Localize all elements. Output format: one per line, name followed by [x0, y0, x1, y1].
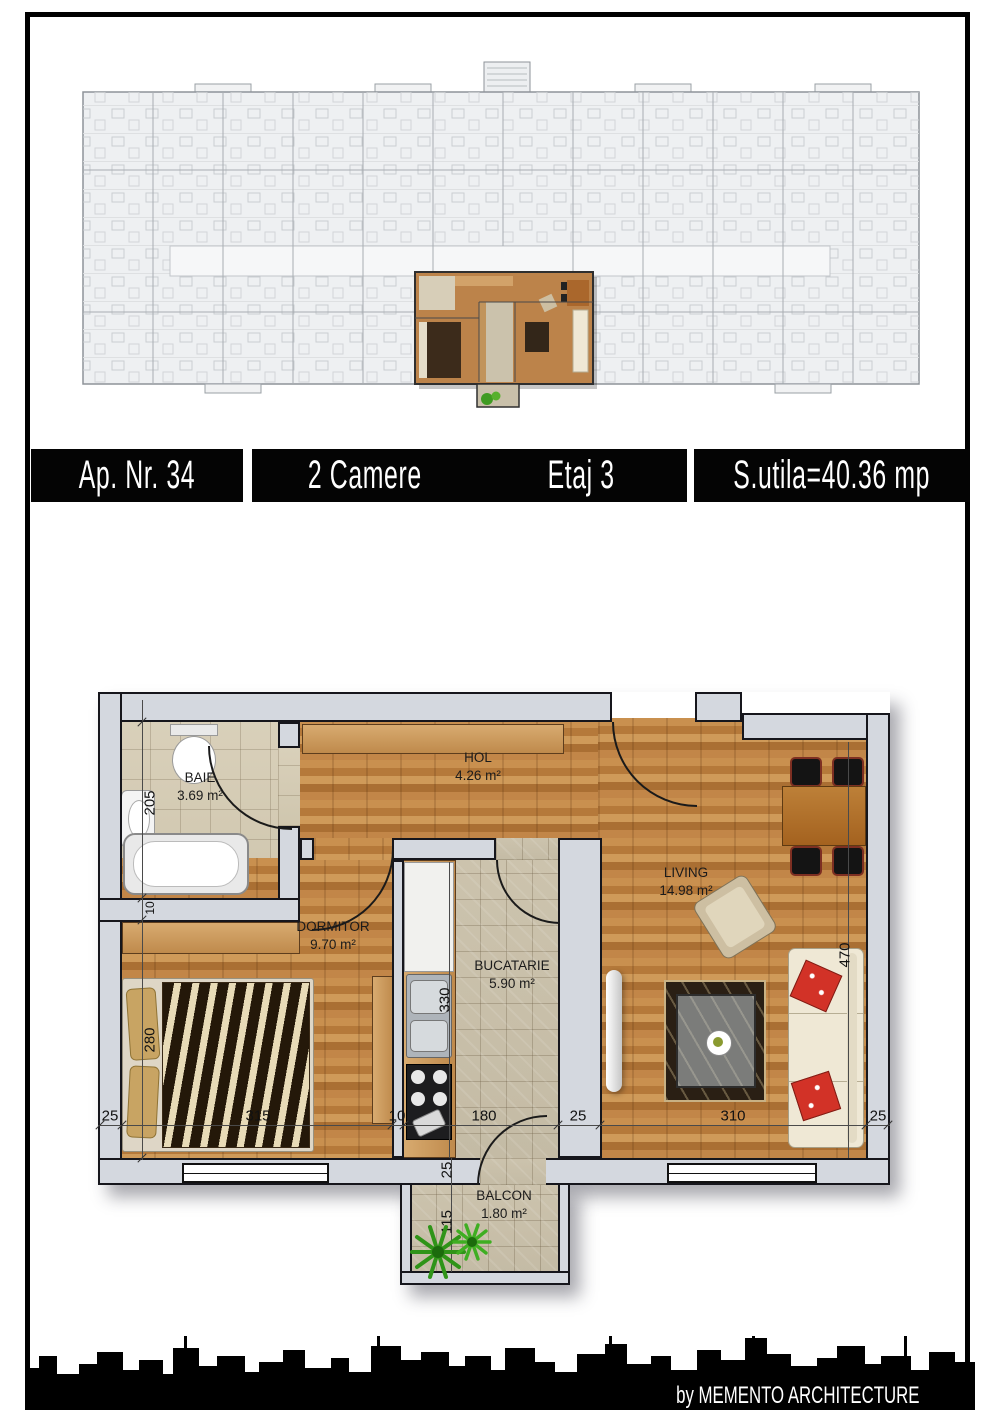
building-overview-plan: [75, 50, 925, 410]
dormitor-wardrobe: [122, 922, 300, 954]
bathtub-inner: [133, 841, 239, 887]
credit-text: by MEMENTO ARCHITECTURE: [677, 1382, 920, 1410]
room-label-baie: BAIE3.69 m²: [177, 769, 223, 805]
stove-burner: [433, 1092, 447, 1106]
wall: [392, 838, 496, 860]
dimension-label: 10: [143, 901, 157, 914]
banner-floor-level: Etaj 3: [475, 449, 687, 502]
room-label-living: LIVING14.98 m²: [659, 864, 712, 900]
balcony-wall: [558, 1183, 570, 1283]
dimension-label: 25: [439, 1162, 456, 1179]
room-label-hol: HOL4.26 m²: [455, 749, 501, 785]
banner-room-count: 2 Camere: [252, 449, 478, 502]
highlighted-apartment: [415, 272, 597, 407]
credit-line: by MEMENTO ARCHITECTURE: [624, 1382, 972, 1410]
bed-blanket: [162, 982, 310, 1148]
dimension-label: 25: [870, 1108, 887, 1125]
banner-apartment-number: Ap. Nr. 34: [31, 449, 243, 502]
living-window: [667, 1163, 817, 1183]
banner-room-count-label: 2 Camere: [308, 453, 422, 498]
kitchen-cabinet: [404, 862, 454, 972]
radiator: [606, 970, 622, 1092]
kitchen-sink-basin: [410, 1020, 448, 1052]
stove-burner: [411, 1092, 425, 1106]
bed-pillow: [126, 1065, 160, 1138]
dining-table: [782, 786, 866, 846]
banner-floor-level-label: Etaj 3: [547, 453, 614, 498]
dimension-label: 25: [102, 1108, 119, 1125]
dimension-label: 280: [142, 1027, 159, 1052]
dimension-label: 205: [142, 790, 159, 815]
stairwell: [484, 62, 530, 94]
wall: [695, 692, 742, 722]
dining-chair: [790, 757, 822, 787]
stove-burner: [411, 1070, 425, 1084]
dimension-label: 25: [570, 1108, 587, 1125]
stove-burner: [433, 1070, 447, 1084]
coffee-table: [676, 994, 756, 1088]
dimension-label: 315: [245, 1108, 270, 1125]
dimension-line: [142, 700, 143, 1160]
wall: [98, 898, 300, 922]
door-opening: [496, 838, 558, 860]
dimension-label: 470: [837, 942, 854, 967]
dormitor-window: [182, 1163, 329, 1183]
toilet-tank: [170, 724, 218, 736]
hol-wardrobe: [302, 724, 564, 754]
wall: [278, 826, 300, 900]
dimension-line: [98, 1125, 890, 1126]
room-label-bucatarie: BUCATARIE5.90 m²: [474, 957, 549, 993]
dining-chair: [790, 846, 822, 876]
banner-usable-area: S.utila=40.36 mp: [694, 449, 970, 502]
banner-usable-area-label: S.utila=40.36 mp: [734, 453, 931, 498]
dimension-label: 310: [720, 1108, 745, 1125]
wall: [278, 722, 300, 748]
balcony-plants: [408, 1212, 500, 1284]
banner-apartment-number-label: Ap. Nr. 34: [79, 453, 195, 498]
room-label-dormitor: DORMITOR9.70 m²: [296, 918, 369, 954]
floorplan-sheet: Ap. Nr. 34 2 Camere Etaj 3 S.utila=40.36…: [0, 0, 1000, 1414]
dimension-label: 180: [471, 1108, 496, 1125]
dresser: [372, 976, 394, 1124]
wall: [98, 692, 612, 722]
dimension-label: 330: [437, 987, 454, 1012]
dimension-label: 10: [389, 1108, 406, 1125]
